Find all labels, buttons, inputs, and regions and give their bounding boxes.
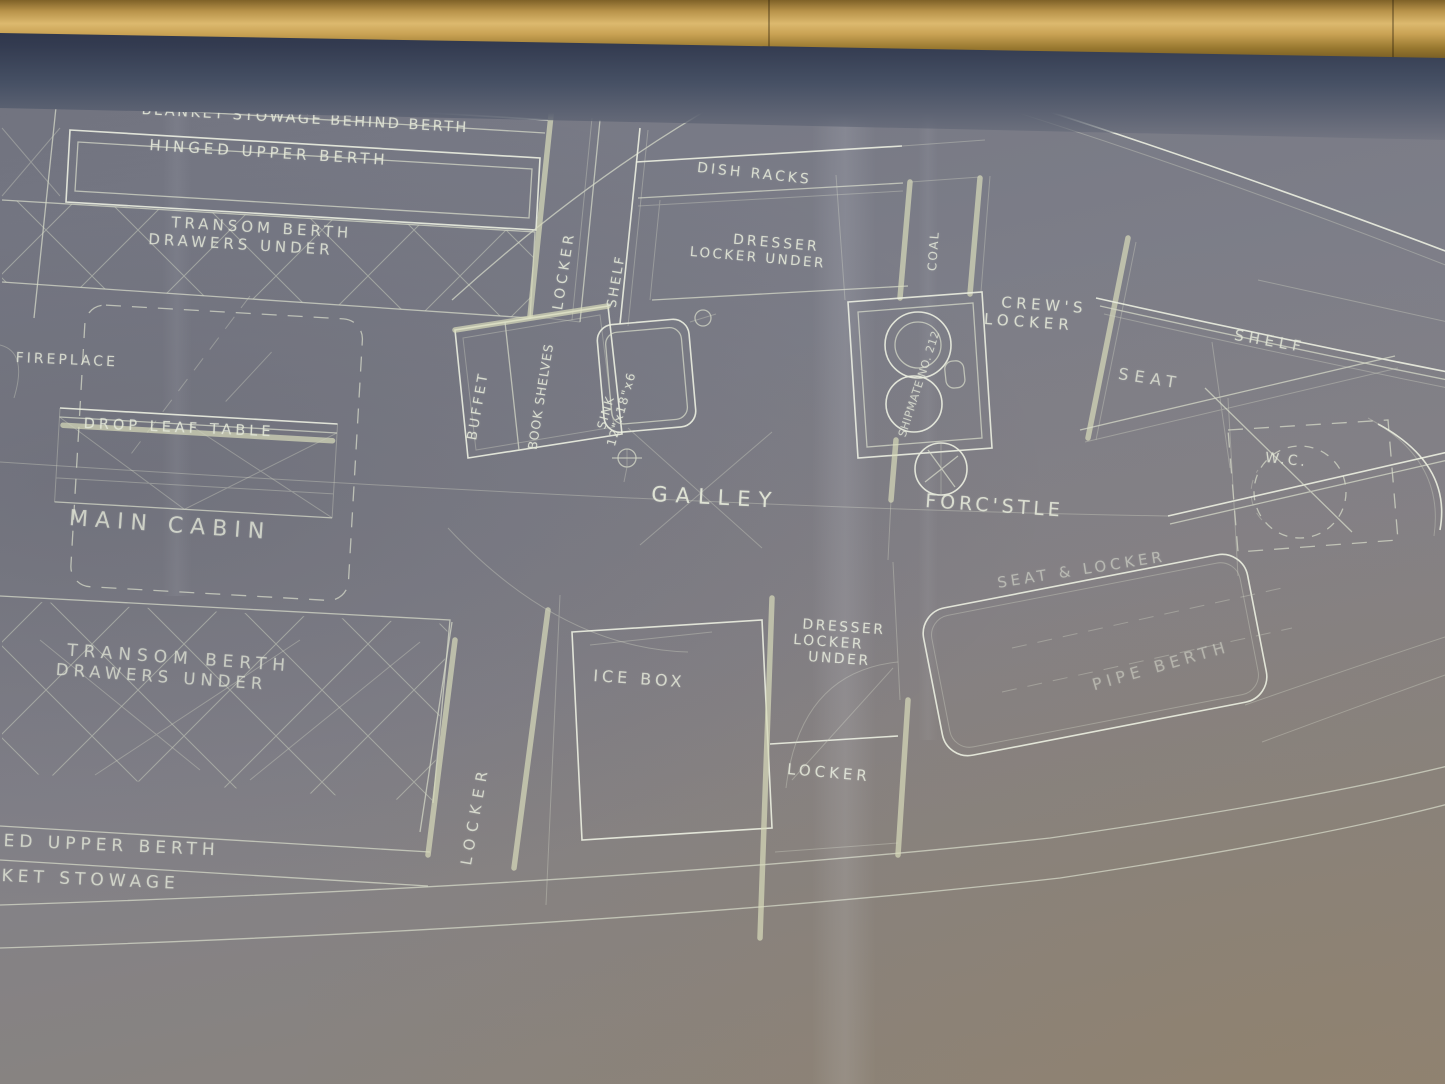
label-dresser-forward: DRESSER LOCKER UNDER: [689, 228, 828, 272]
label-pipe-berth: PIPE BERTH: [1090, 637, 1232, 694]
label-seat-and-locker: SEAT & LOCKER: [996, 547, 1167, 591]
label-coal: COAL: [925, 230, 942, 271]
label-fireplace: FIREPLACE: [15, 350, 118, 370]
label-seat: SEAT: [1117, 364, 1183, 393]
label-drop-leaf-table: DROP LEAF TABLE: [83, 416, 274, 440]
label-crews-locker: CREW'S LOCKER: [983, 292, 1087, 335]
label-dish-racks: DISH RACKS: [696, 160, 812, 188]
label-dresser-aft: DRESSER LOCKER UNDER: [792, 616, 886, 670]
label-locker-galley: LOCKER: [786, 760, 871, 785]
label-sink: SINK 12"x18"x6: [591, 366, 639, 448]
label-ice-box: ICE BOX: [593, 666, 686, 691]
label-transom-berth-forward: TRANSOM BERTH DRAWERS UNDER: [148, 212, 353, 260]
label-galley: GALLEY: [651, 482, 780, 513]
label-book-shelves: BOOK SHELVES: [525, 342, 557, 450]
label-forecastle: FORC'STLE: [924, 490, 1064, 522]
label-transom-berth-aft: TRANSOM BERTH DRAWERS UNDER: [55, 640, 291, 695]
label-wc: W.C.: [1264, 450, 1308, 470]
label-stowage-partial: KET STOWAGE: [1, 866, 180, 894]
framed-blueprint-photo: BLANKET STOWAGE BEHIND BERTH HINGED UPPE…: [0, 0, 1445, 1084]
label-shelf-forward: SHELF: [605, 254, 629, 309]
label-locker-forward: LOCKER: [550, 230, 578, 311]
label-stove-shipmate: SHIPMATE NO. 212: [896, 329, 943, 438]
blueprint-labels: BLANKET STOWAGE BEHIND BERTH HINGED UPPE…: [0, 0, 1445, 1084]
label-upper-berth-partial: ED UPPER BERTH: [3, 831, 220, 860]
label-shelf-starboard: SHELF: [1233, 326, 1307, 356]
label-hinged-upper-berth: HINGED UPPER BERTH: [149, 136, 389, 169]
frame-seam: [1392, 0, 1394, 62]
label-main-cabin: MAIN CABIN: [68, 506, 272, 545]
label-locker-aft: LOCKER: [457, 763, 492, 866]
label-buffet: BUFFET: [464, 370, 492, 441]
